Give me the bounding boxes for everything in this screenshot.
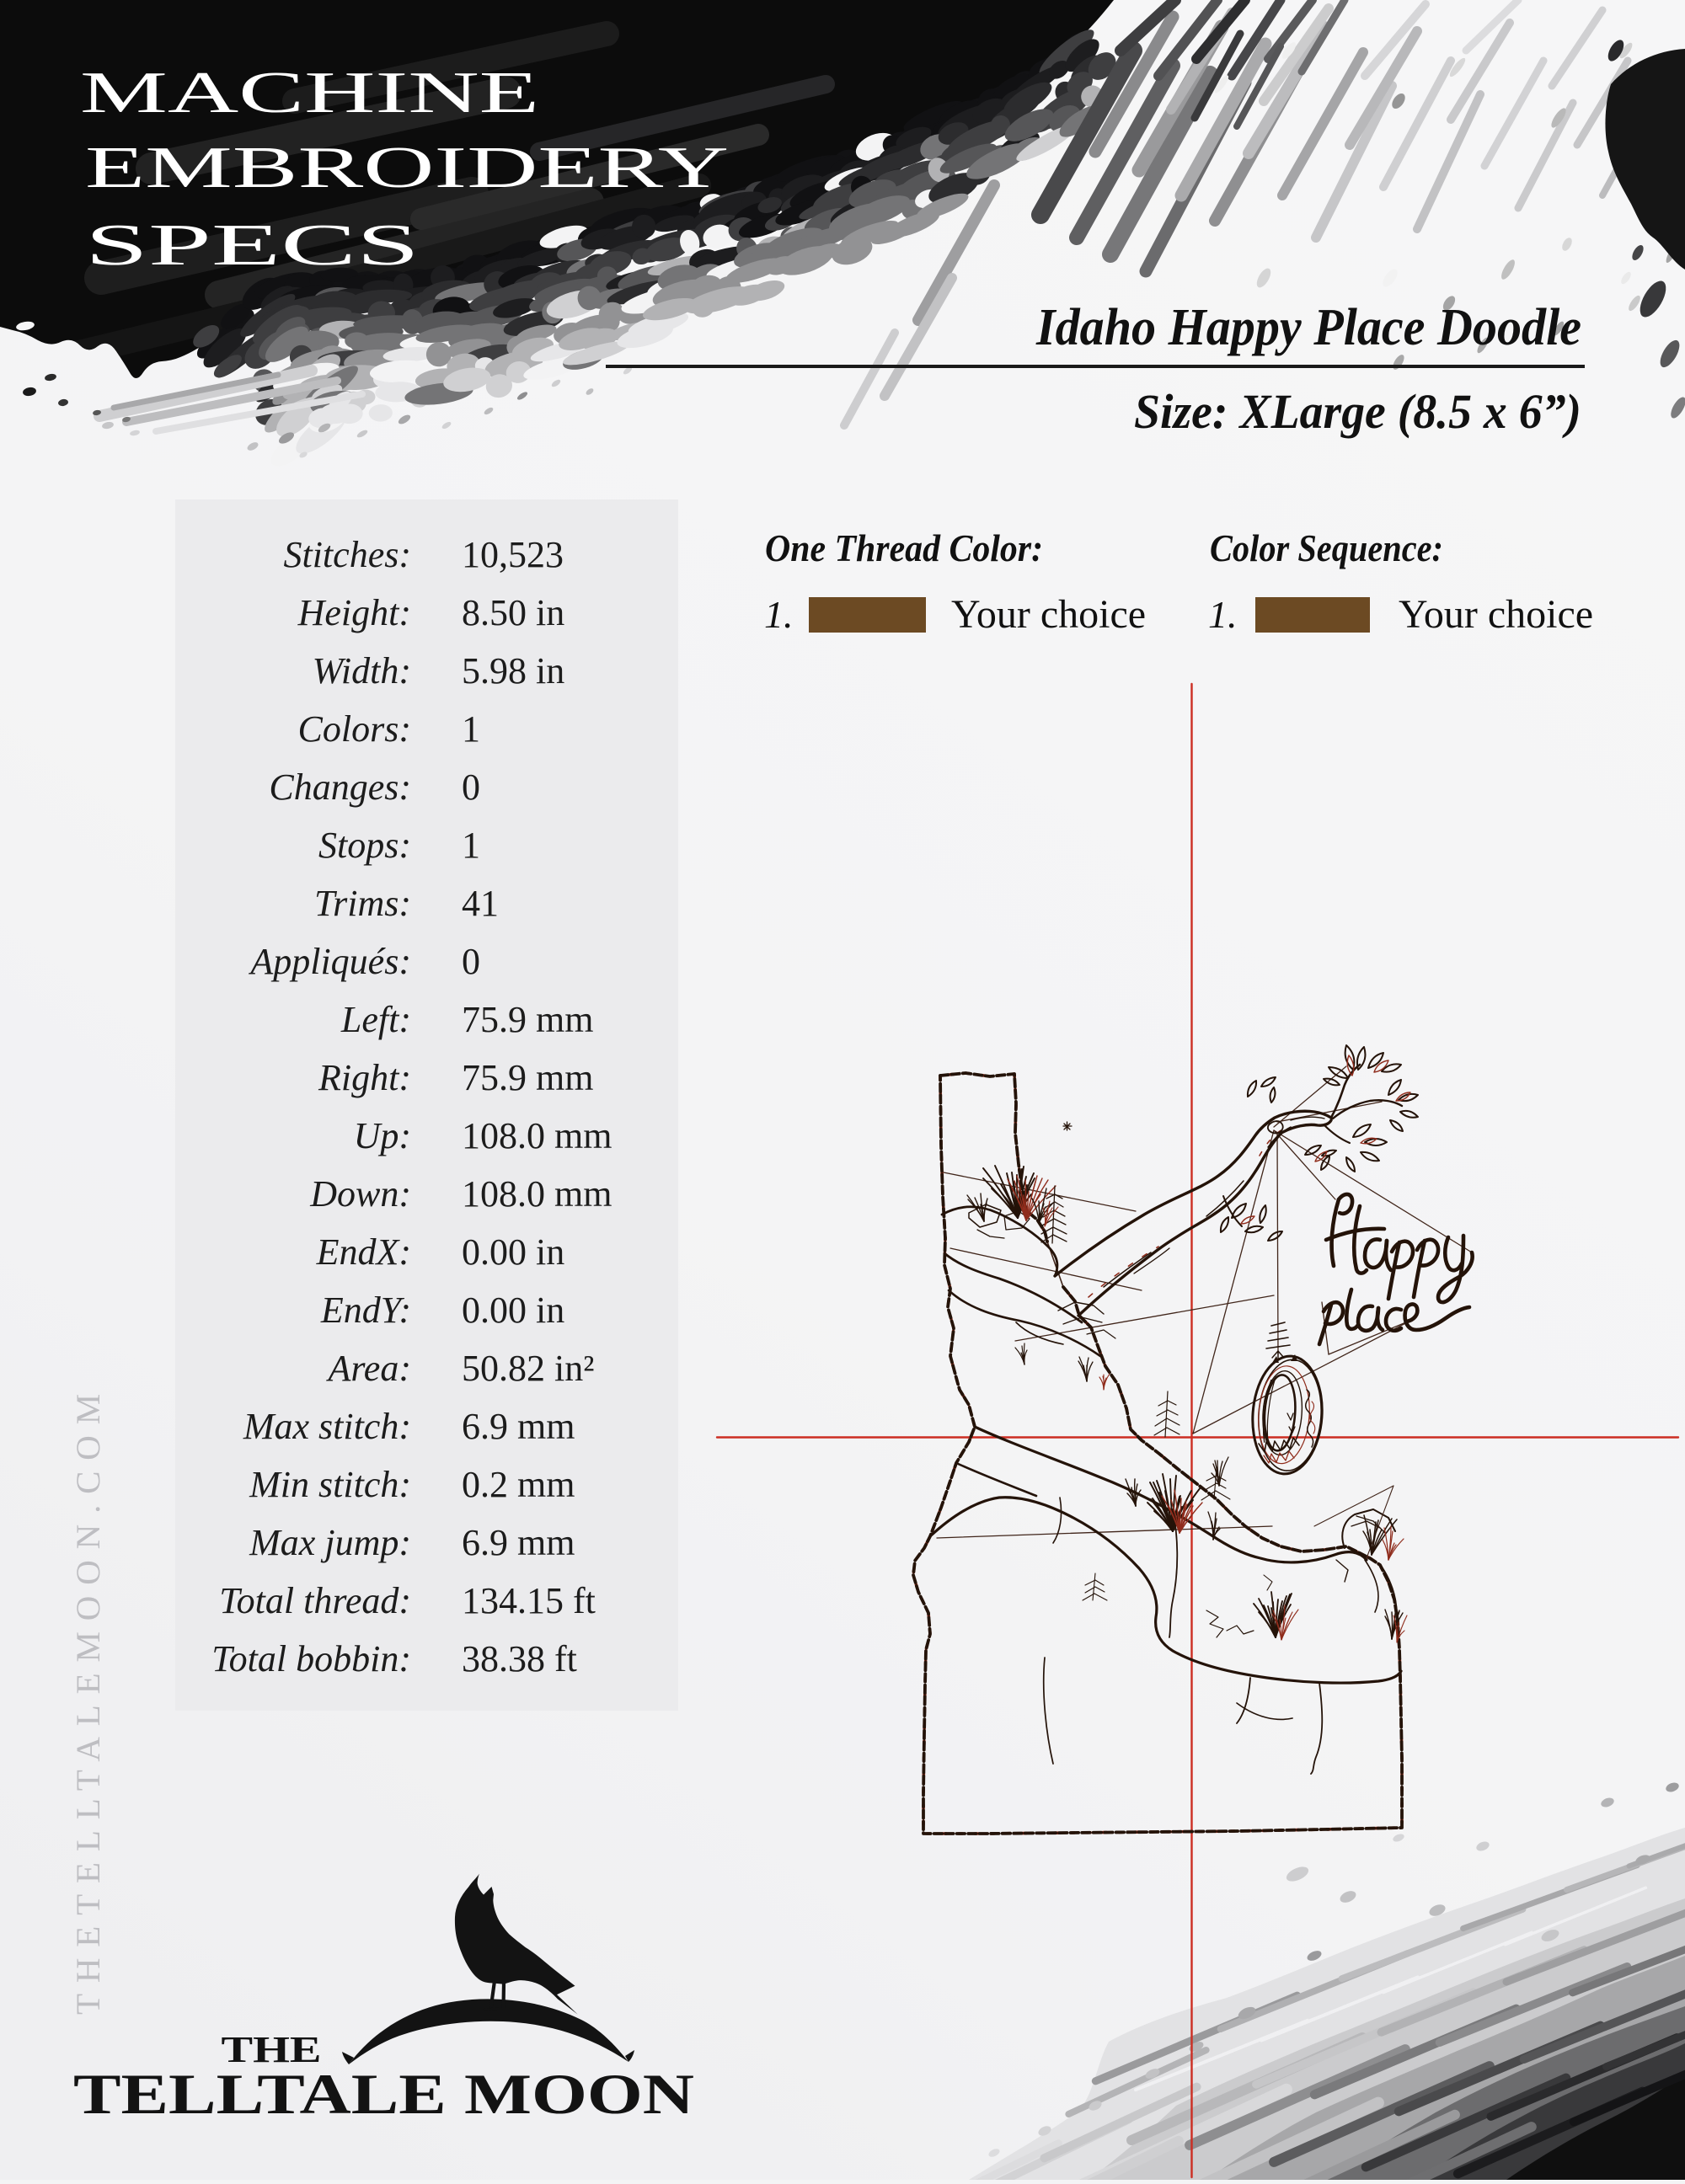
svg-text:5.98 in: 5.98 in xyxy=(462,650,564,692)
svg-text:Your choice: Your choice xyxy=(1399,592,1593,637)
svg-text:6.9 mm: 6.9 mm xyxy=(462,1406,575,1447)
svg-text:108.0 mm: 108.0 mm xyxy=(462,1173,612,1215)
svg-text:1.: 1. xyxy=(1208,593,1238,636)
svg-text:41: 41 xyxy=(462,883,499,924)
svg-text:Width:: Width: xyxy=(313,650,411,692)
svg-text:SPECS: SPECS xyxy=(85,213,420,278)
svg-text:0: 0 xyxy=(462,941,480,982)
svg-text:Total thread:: Total thread: xyxy=(219,1580,411,1621)
svg-text:108.0 mm: 108.0 mm xyxy=(462,1115,612,1156)
svg-text:38.38 ft: 38.38 ft xyxy=(462,1638,577,1679)
svg-text:Stops:: Stops: xyxy=(318,825,411,866)
svg-text:THETELLTALEMOON.COM: THETELLTALEMOON.COM xyxy=(69,1383,107,2015)
svg-text:Area:: Area: xyxy=(325,1348,411,1389)
svg-text:MACHINE: MACHINE xyxy=(80,61,539,125)
svg-text:Up:: Up: xyxy=(354,1115,411,1156)
svg-text:EndY:: EndY: xyxy=(320,1290,411,1331)
svg-text:1.: 1. xyxy=(764,593,794,636)
svg-text:Colors:: Colors: xyxy=(298,708,411,750)
svg-text:0: 0 xyxy=(462,766,480,808)
svg-text:EndX:: EndX: xyxy=(316,1231,411,1273)
svg-text:Idaho Happy Place Doodle: Idaho Happy Place Doodle xyxy=(1035,299,1581,356)
svg-text:Color Sequence:: Color Sequence: xyxy=(1210,526,1443,569)
svg-text:Min stitch:: Min stitch: xyxy=(249,1464,411,1505)
svg-text:0.2 mm: 0.2 mm xyxy=(462,1464,575,1505)
svg-text:Stitches:: Stitches: xyxy=(283,534,411,575)
svg-text:0.00 in: 0.00 in xyxy=(462,1290,564,1331)
svg-text:6.9 mm: 6.9 mm xyxy=(462,1522,575,1563)
svg-text:Total bobbin:: Total bobbin: xyxy=(211,1638,411,1679)
svg-text:Max jump:: Max jump: xyxy=(249,1522,411,1563)
svg-text:75.9 mm: 75.9 mm xyxy=(462,999,593,1040)
svg-text:Max stitch:: Max stitch: xyxy=(243,1406,411,1447)
svg-text:Appliqués:: Appliqués: xyxy=(248,941,411,982)
svg-text:Right:: Right: xyxy=(318,1057,411,1098)
svg-text:EMBROIDERY: EMBROIDERY xyxy=(85,136,729,200)
svg-text:Trims:: Trims: xyxy=(314,883,411,924)
svg-text:10,523: 10,523 xyxy=(462,534,564,575)
svg-text:Down:: Down: xyxy=(309,1173,411,1215)
svg-text:Size: XLarge (8.5 x 6”): Size: XLarge (8.5 x 6”) xyxy=(1134,384,1581,439)
svg-text:Changes:: Changes: xyxy=(269,766,411,808)
svg-text:Your choice: Your choice xyxy=(951,592,1146,637)
svg-text:1: 1 xyxy=(462,708,480,750)
svg-text:8.50 in: 8.50 in xyxy=(462,592,564,633)
svg-text:75.9 mm: 75.9 mm xyxy=(462,1057,593,1098)
svg-text:0.00 in: 0.00 in xyxy=(462,1231,564,1273)
svg-text:134.15 ft: 134.15 ft xyxy=(462,1580,596,1621)
svg-text:1: 1 xyxy=(462,825,480,866)
svg-text:TELLTALE MOON: TELLTALE MOON xyxy=(73,2062,694,2126)
svg-text:Left:: Left: xyxy=(340,999,411,1040)
svg-text:50.82 in²: 50.82 in² xyxy=(462,1348,594,1389)
svg-text:One Thread Color:: One Thread Color: xyxy=(765,526,1043,569)
svg-text:Height:: Height: xyxy=(297,592,411,633)
